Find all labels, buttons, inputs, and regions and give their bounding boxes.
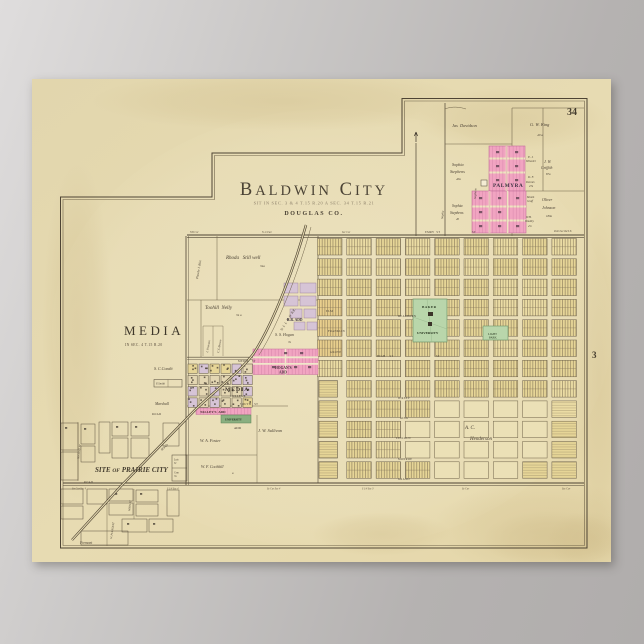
svg-text:S 1/4 Sec 4: S 1/4 Sec 4 <box>167 488 179 491</box>
svg-text:Stephens: Stephens <box>473 187 477 199</box>
svg-text:7a: 7a <box>288 340 292 344</box>
svg-text:Toohill Nelly: Toohill Nelly <box>205 306 233 311</box>
svg-text:Se Cor: Se Cor <box>462 488 470 491</box>
svg-text:MEDIA: MEDIA <box>124 323 184 338</box>
svg-text:Sophia: Sophia <box>452 204 463 208</box>
svg-text:Jas Davidson: Jas Davidson <box>452 123 478 128</box>
svg-text:F.Smith: F.Smith <box>155 382 166 386</box>
svg-text:UNIVERSITY: UNIVERSITY <box>417 331 439 335</box>
svg-text:ELM: ELM <box>326 309 333 313</box>
svg-text:Sophia: Sophia <box>452 162 464 167</box>
svg-text:Griffith: Griffith <box>541 166 552 170</box>
svg-text:Se Cor Sec 4: Se Cor Sec 4 <box>267 488 281 491</box>
svg-text:3: 3 <box>592 350 597 360</box>
svg-text:DEARBORN: DEARBORN <box>398 314 417 318</box>
svg-text:S 1/4 Sec 3: S 1/4 Sec 3 <box>362 488 374 491</box>
svg-text:N 1/4 Sec: N 1/4 Sec <box>261 231 273 234</box>
svg-text:TALLEY'S ADD: TALLEY'S ADD <box>200 410 226 414</box>
svg-text:MEDIA ST: MEDIA ST <box>238 359 256 363</box>
svg-text:SOUTH ST: SOUTH ST <box>240 402 258 406</box>
svg-text:BALDWIN CITY: BALDWIN CITY <box>240 180 388 200</box>
svg-text:Bradley: Bradley <box>525 220 535 223</box>
svg-text:Marshall: Marshall <box>154 402 169 406</box>
svg-text:40 a: 40 a <box>537 133 543 137</box>
svg-text:ST: ST <box>472 230 476 234</box>
svg-text:JERSEY: JERSEY <box>398 396 411 400</box>
svg-text:Oliver: Oliver <box>542 197 553 202</box>
svg-text:D. F.: D. F. <box>527 175 534 179</box>
svg-text:W. A. Foster: W. A. Foster <box>200 438 221 443</box>
svg-text:GRAND: GRAND <box>398 477 410 481</box>
svg-text:EMRY ST: EMRY ST <box>425 230 440 234</box>
svg-text:Sw Cor Sec 4: Sw Cor Sec 4 <box>72 488 87 491</box>
svg-text:Fremont: Fremont <box>79 541 93 545</box>
svg-text:MEDIA: MEDIA <box>225 387 249 393</box>
svg-text:ST: ST <box>436 354 440 358</box>
svg-text:BAKER: BAKER <box>422 305 437 309</box>
svg-text:Rhoda Still well: Rhoda Still well <box>225 256 261 261</box>
svg-text:J. W.: J. W. <box>544 160 552 164</box>
svg-text:G. W. King: G. W. King <box>530 122 550 127</box>
svg-text:40a: 40a <box>456 177 461 181</box>
svg-text:ADD: ADD <box>234 426 242 430</box>
svg-text:34a: 34a <box>260 264 265 268</box>
svg-text:HIGH ST: HIGH ST <box>377 354 394 358</box>
svg-text:87a: 87a <box>546 172 551 176</box>
svg-text:MONROE: MONROE <box>398 457 412 461</box>
svg-text:W. F. Cochkill: W. F. Cochkill <box>201 464 224 469</box>
svg-text:Sec Cor: Sec Cor <box>342 231 351 234</box>
svg-text:IN SEC. 4 T.15 R.20: IN SEC. 4 T.15 R.20 <box>125 343 163 347</box>
svg-text:Palm Sec Rd S.E.: Palm Sec Rd S.E. <box>553 230 572 233</box>
svg-text:GROVE: GROVE <box>330 350 341 354</box>
svg-text:Wheeler: Wheeler <box>526 159 537 163</box>
svg-text:ADD: ADD <box>279 371 287 375</box>
svg-text:NW Cor: NW Cor <box>189 231 200 234</box>
svg-text:189a: 189a <box>546 214 553 218</box>
svg-text:Stephens: Stephens <box>450 211 464 215</box>
svg-text:KING: KING <box>400 416 408 420</box>
svg-text:S. C.Condit: S. C.Condit <box>154 366 173 371</box>
svg-text:PARK: PARK <box>489 336 498 340</box>
svg-text:FRANKLIN: FRANKLIN <box>328 329 346 333</box>
svg-text:HOGAN'S: HOGAN'S <box>275 366 292 370</box>
svg-text:S. S. Hogan: S. S. Hogan <box>275 332 294 337</box>
svg-text:34 a: 34 a <box>236 313 242 317</box>
svg-text:Stephens: Stephens <box>450 169 465 174</box>
svg-text:Mouth: Mouth <box>526 196 535 199</box>
svg-text:Sophia: Sophia <box>440 210 445 219</box>
svg-text:Dennis: Dennis <box>525 180 535 184</box>
svg-text:SITE OF PRAIRIE CITY: SITE OF PRAIRIE CITY <box>95 466 169 474</box>
svg-text:J. W. Sullivan: J. W. Sullivan <box>258 428 283 433</box>
svg-text:27a: 27a <box>529 185 534 188</box>
svg-text:Sec Cor: Sec Cor <box>562 488 571 491</box>
svg-text:Johnson: Johnson <box>542 205 555 210</box>
svg-text:LINCOLN: LINCOLN <box>396 436 411 440</box>
svg-text:34: 34 <box>567 107 577 118</box>
svg-text:UNIVERSITY: UNIVERSITY <box>225 419 242 422</box>
svg-text:PALMYRA: PALMYRA <box>493 183 523 189</box>
svg-text:ROAD: ROAD <box>84 480 93 484</box>
svg-text:DOUGLAS CO.: DOUGLAS CO. <box>284 211 343 217</box>
svg-text:40: 40 <box>456 217 460 221</box>
svg-text:Henderson: Henderson <box>469 437 492 442</box>
svg-text:W.H.: W.H. <box>526 216 532 219</box>
svg-text:ROAD: ROAD <box>152 412 161 416</box>
svg-text:SIT IN SEC. 3 & 4 T.15 R.20 A: SIT IN SEC. 3 & 4 T.15 R.20 A SEC. 34 T.… <box>254 201 375 206</box>
svg-text:A. C.: A. C. <box>464 426 475 431</box>
svg-text:COLLEGE: COLLEGE <box>230 394 246 398</box>
